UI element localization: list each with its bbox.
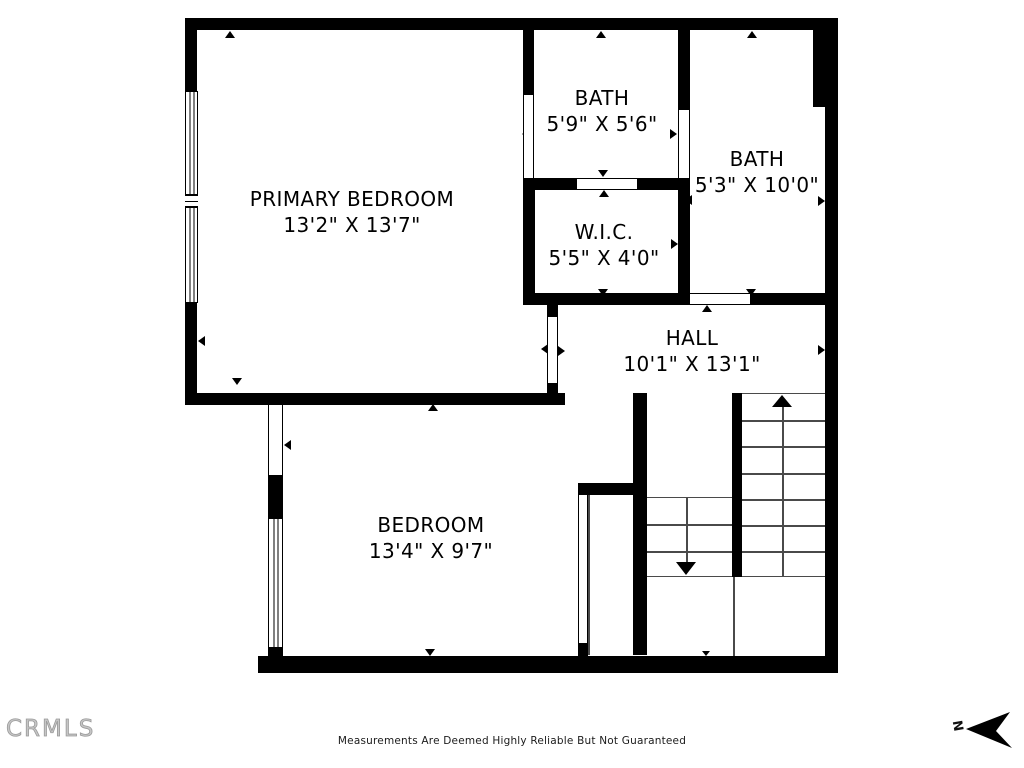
wall-segment bbox=[523, 293, 690, 305]
room-dims: 10'1" X 13'1" bbox=[623, 351, 760, 377]
stair-down-arrow-icon bbox=[676, 562, 696, 575]
window-pane-line bbox=[273, 519, 278, 647]
wall-segment bbox=[185, 393, 565, 405]
wall-segment bbox=[523, 30, 534, 95]
window-mullion bbox=[185, 195, 198, 207]
measurement-arrow-icon bbox=[425, 649, 435, 656]
stair-landing-divider-line bbox=[733, 577, 735, 656]
measurement-arrow-icon bbox=[671, 239, 678, 249]
room-label-bath-right: BATH 5'3" X 10'0" bbox=[695, 146, 819, 198]
room-name: BEDROOM bbox=[369, 512, 493, 538]
window-primary-bedroom-2 bbox=[185, 207, 198, 303]
measurement-arrow-icon bbox=[198, 336, 205, 346]
room-dims: 5'3" X 10'0" bbox=[695, 172, 819, 198]
staircase-up bbox=[742, 393, 825, 577]
room-label-primary-bedroom: PRIMARY BEDROOM 13'2" X 13'7" bbox=[250, 186, 454, 238]
measurement-arrow-icon bbox=[702, 305, 712, 312]
room-label-bedroom: BEDROOM 13'4" X 9'7" bbox=[369, 512, 493, 564]
window-pane-line bbox=[189, 92, 194, 194]
stair-tread-line bbox=[647, 524, 732, 526]
measurement-arrow-icon bbox=[598, 170, 608, 177]
wall-segment bbox=[678, 30, 690, 110]
measurement-arrow-icon bbox=[670, 129, 677, 139]
door-opening-primary-to-hall bbox=[547, 317, 558, 383]
measurement-arrow-icon bbox=[599, 190, 609, 197]
measurement-arrow-icon bbox=[596, 31, 606, 38]
wall-segment bbox=[678, 178, 690, 305]
window-pane-line bbox=[189, 208, 194, 302]
door-opening-primary-to-bath bbox=[523, 95, 534, 178]
wall-segment bbox=[268, 648, 283, 658]
door-opening-bath-to-bath bbox=[678, 110, 690, 178]
room-dims: 13'2" X 13'7" bbox=[250, 212, 454, 238]
measurement-arrow-icon bbox=[818, 345, 825, 355]
room-name: PRIMARY BEDROOM bbox=[250, 186, 454, 212]
stair-center-line bbox=[686, 498, 688, 564]
door-opening-bath-to-hall bbox=[690, 293, 750, 305]
closet-slider-opening bbox=[578, 495, 588, 643]
room-label-wic: W.I.C. 5'5" X 4'0" bbox=[548, 219, 659, 271]
room-name: BATH bbox=[695, 146, 819, 172]
measurement-arrow-icon bbox=[284, 440, 291, 450]
floor-plan-page: PRIMARY BEDROOM 13'2" X 13'7" BATH 5'9" … bbox=[0, 0, 1024, 768]
wall-segment bbox=[732, 393, 742, 577]
door-opening-wic bbox=[577, 178, 637, 190]
staircase-down bbox=[647, 497, 732, 577]
room-dims: 13'4" X 9'7" bbox=[369, 538, 493, 564]
measurement-arrow-icon bbox=[747, 31, 757, 38]
room-label-bath-top: BATH 5'9" X 5'6" bbox=[546, 85, 657, 137]
wall-segment bbox=[813, 18, 825, 107]
wall-segment bbox=[185, 303, 197, 405]
wall-segment bbox=[637, 178, 690, 190]
room-label-hall: HALL 10'1" X 13'1" bbox=[623, 325, 760, 377]
window-primary-bedroom-1 bbox=[185, 91, 198, 195]
window-bedroom bbox=[268, 518, 283, 648]
wall-segment bbox=[258, 656, 838, 673]
wall-segment bbox=[825, 18, 838, 673]
stair-up-arrow-icon bbox=[772, 395, 792, 407]
wall-segment bbox=[578, 643, 588, 656]
room-dims: 5'5" X 4'0" bbox=[548, 245, 659, 271]
measurement-arrow-icon bbox=[225, 31, 235, 38]
disclaimer-text: Measurements Are Deemed Highly Reliable … bbox=[338, 735, 686, 747]
wall-segment bbox=[547, 305, 558, 317]
room-name: BATH bbox=[546, 85, 657, 111]
floor-plan: PRIMARY BEDROOM 13'2" X 13'7" BATH 5'9" … bbox=[0, 0, 1024, 768]
mullion-line bbox=[185, 201, 198, 202]
crmls-watermark: CRMLS bbox=[6, 716, 95, 742]
wall-segment bbox=[523, 178, 535, 305]
door-opening-bedroom-left bbox=[268, 405, 283, 475]
wall-segment bbox=[633, 393, 647, 655]
wall-segment bbox=[268, 475, 283, 518]
wall-segment bbox=[750, 293, 825, 305]
measurement-arrow-icon bbox=[428, 404, 438, 411]
north-arrow-icon bbox=[966, 712, 1014, 750]
room-name: HALL bbox=[623, 325, 760, 351]
stair-center-line bbox=[782, 406, 784, 576]
closet-divider-line bbox=[588, 495, 590, 655]
room-dims: 5'9" X 5'6" bbox=[546, 111, 657, 137]
room-name: W.I.C. bbox=[548, 219, 659, 245]
wall-segment bbox=[185, 18, 838, 30]
measurement-arrow-icon bbox=[232, 378, 242, 385]
north-indicator: N bbox=[946, 706, 1016, 756]
stair-tread-line bbox=[647, 551, 732, 553]
measurement-arrow-icon bbox=[558, 346, 565, 356]
